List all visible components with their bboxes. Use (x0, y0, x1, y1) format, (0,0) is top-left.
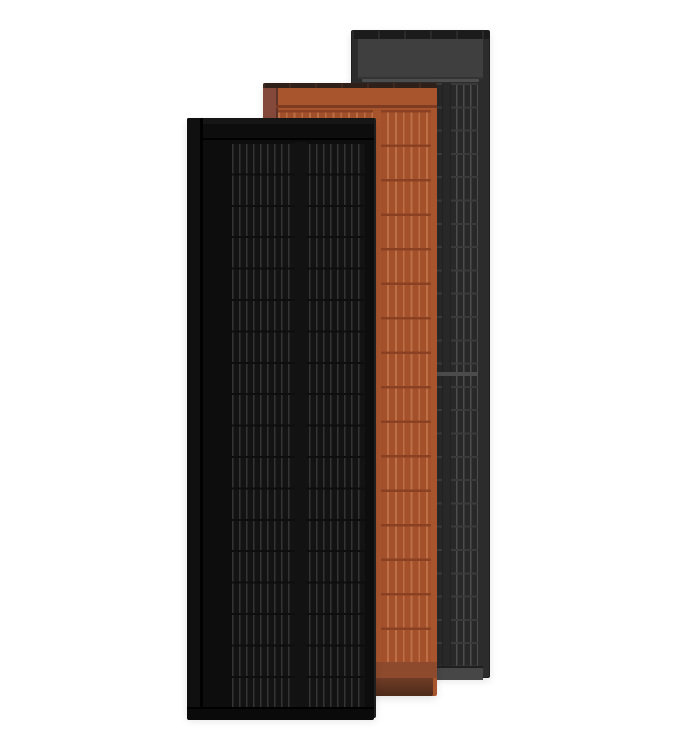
product-stage (0, 0, 684, 748)
black-flap-groove (200, 118, 203, 718)
black-cell-grid (232, 142, 365, 707)
terracotta-top-edge-strip (263, 83, 437, 88)
black-header-groove (203, 138, 374, 140)
black-cell-column-gap (295, 142, 306, 707)
solar-panel-black (187, 118, 376, 718)
terracotta-header-groove (276, 105, 437, 108)
charcoal-header-section (358, 39, 483, 79)
black-bottom-strip (187, 707, 374, 720)
black-left-flap (187, 118, 200, 718)
charcoal-header-separator (362, 79, 479, 82)
black-top-edge-strip (187, 118, 374, 124)
charcoal-top-mounting-strip (352, 31, 489, 39)
